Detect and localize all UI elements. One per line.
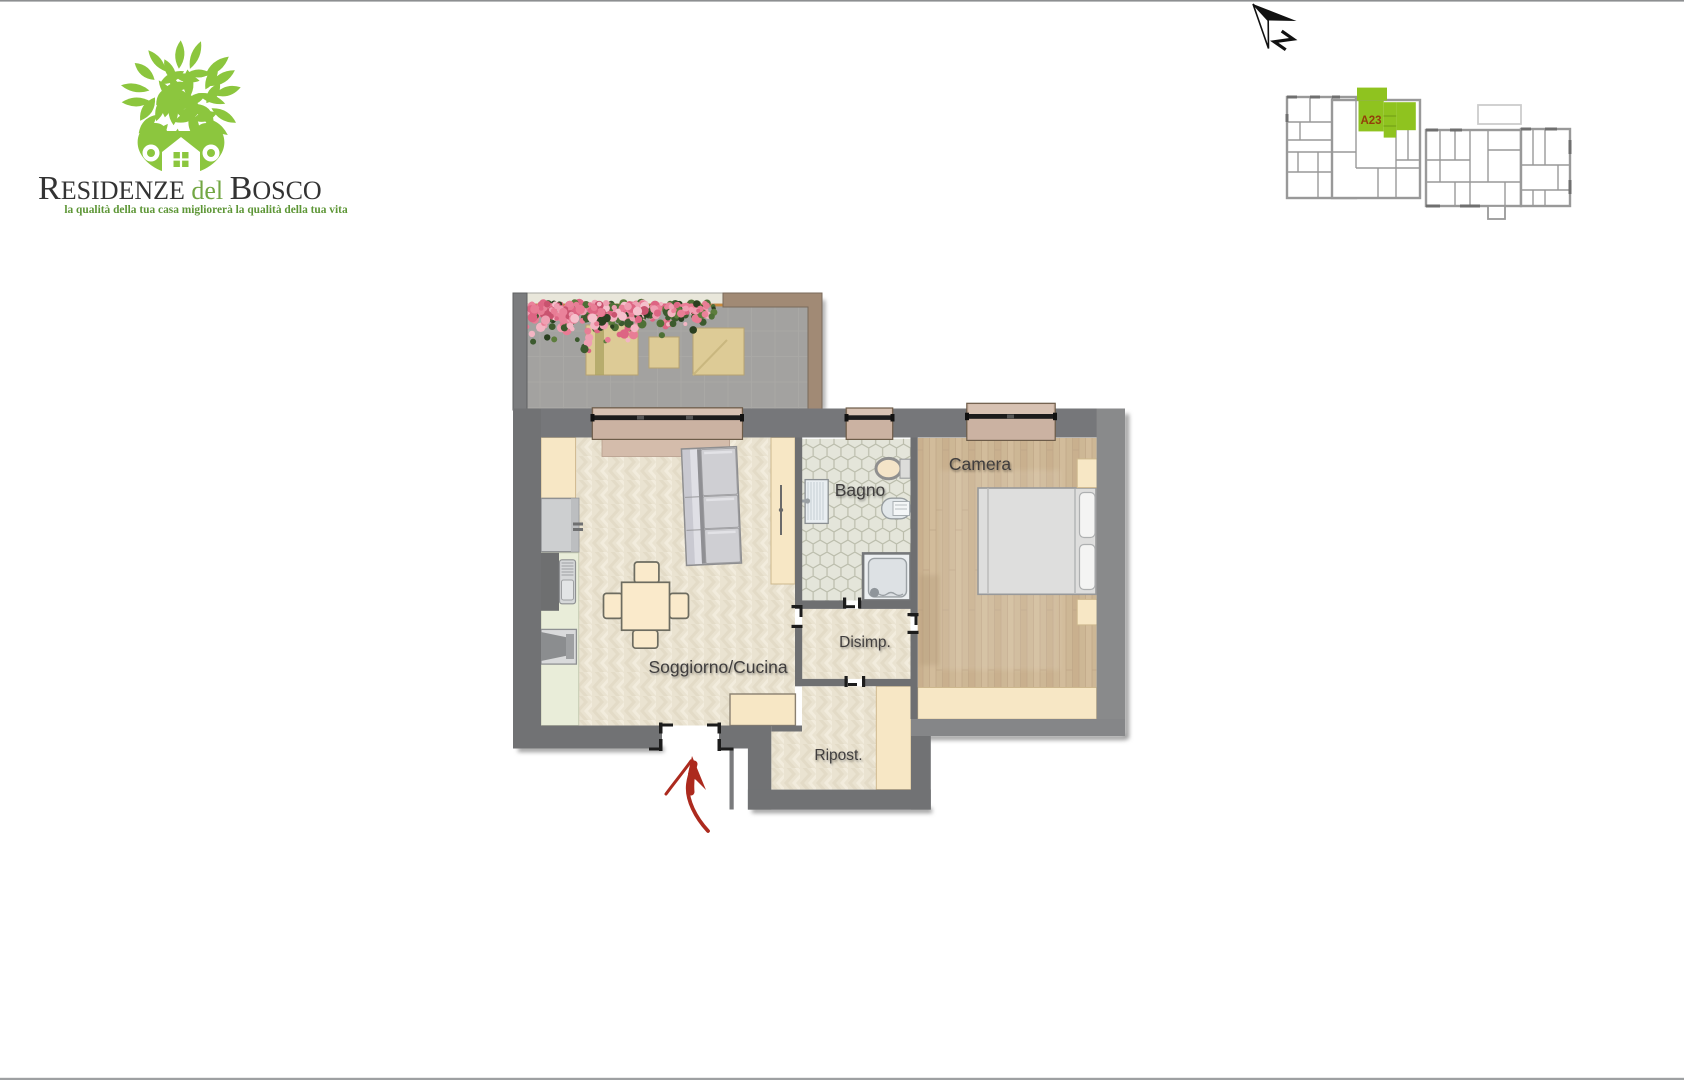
svg-text:Soggiorno/Cucina: Soggiorno/Cucina bbox=[648, 657, 787, 677]
svg-text:Bagno: Bagno bbox=[835, 480, 886, 500]
svg-text:A23: A23 bbox=[1360, 115, 1381, 127]
svg-text:Ripost.: Ripost. bbox=[814, 747, 862, 764]
svg-text:RESIDENZE del BOSCO: RESIDENZE del BOSCO bbox=[38, 170, 322, 207]
svg-text:la qualità della tua casa migl: la qualità della tua casa migliorerà la … bbox=[64, 204, 348, 216]
svg-text:Camera: Camera bbox=[949, 454, 1012, 474]
svg-text:Disimp.: Disimp. bbox=[839, 634, 891, 651]
